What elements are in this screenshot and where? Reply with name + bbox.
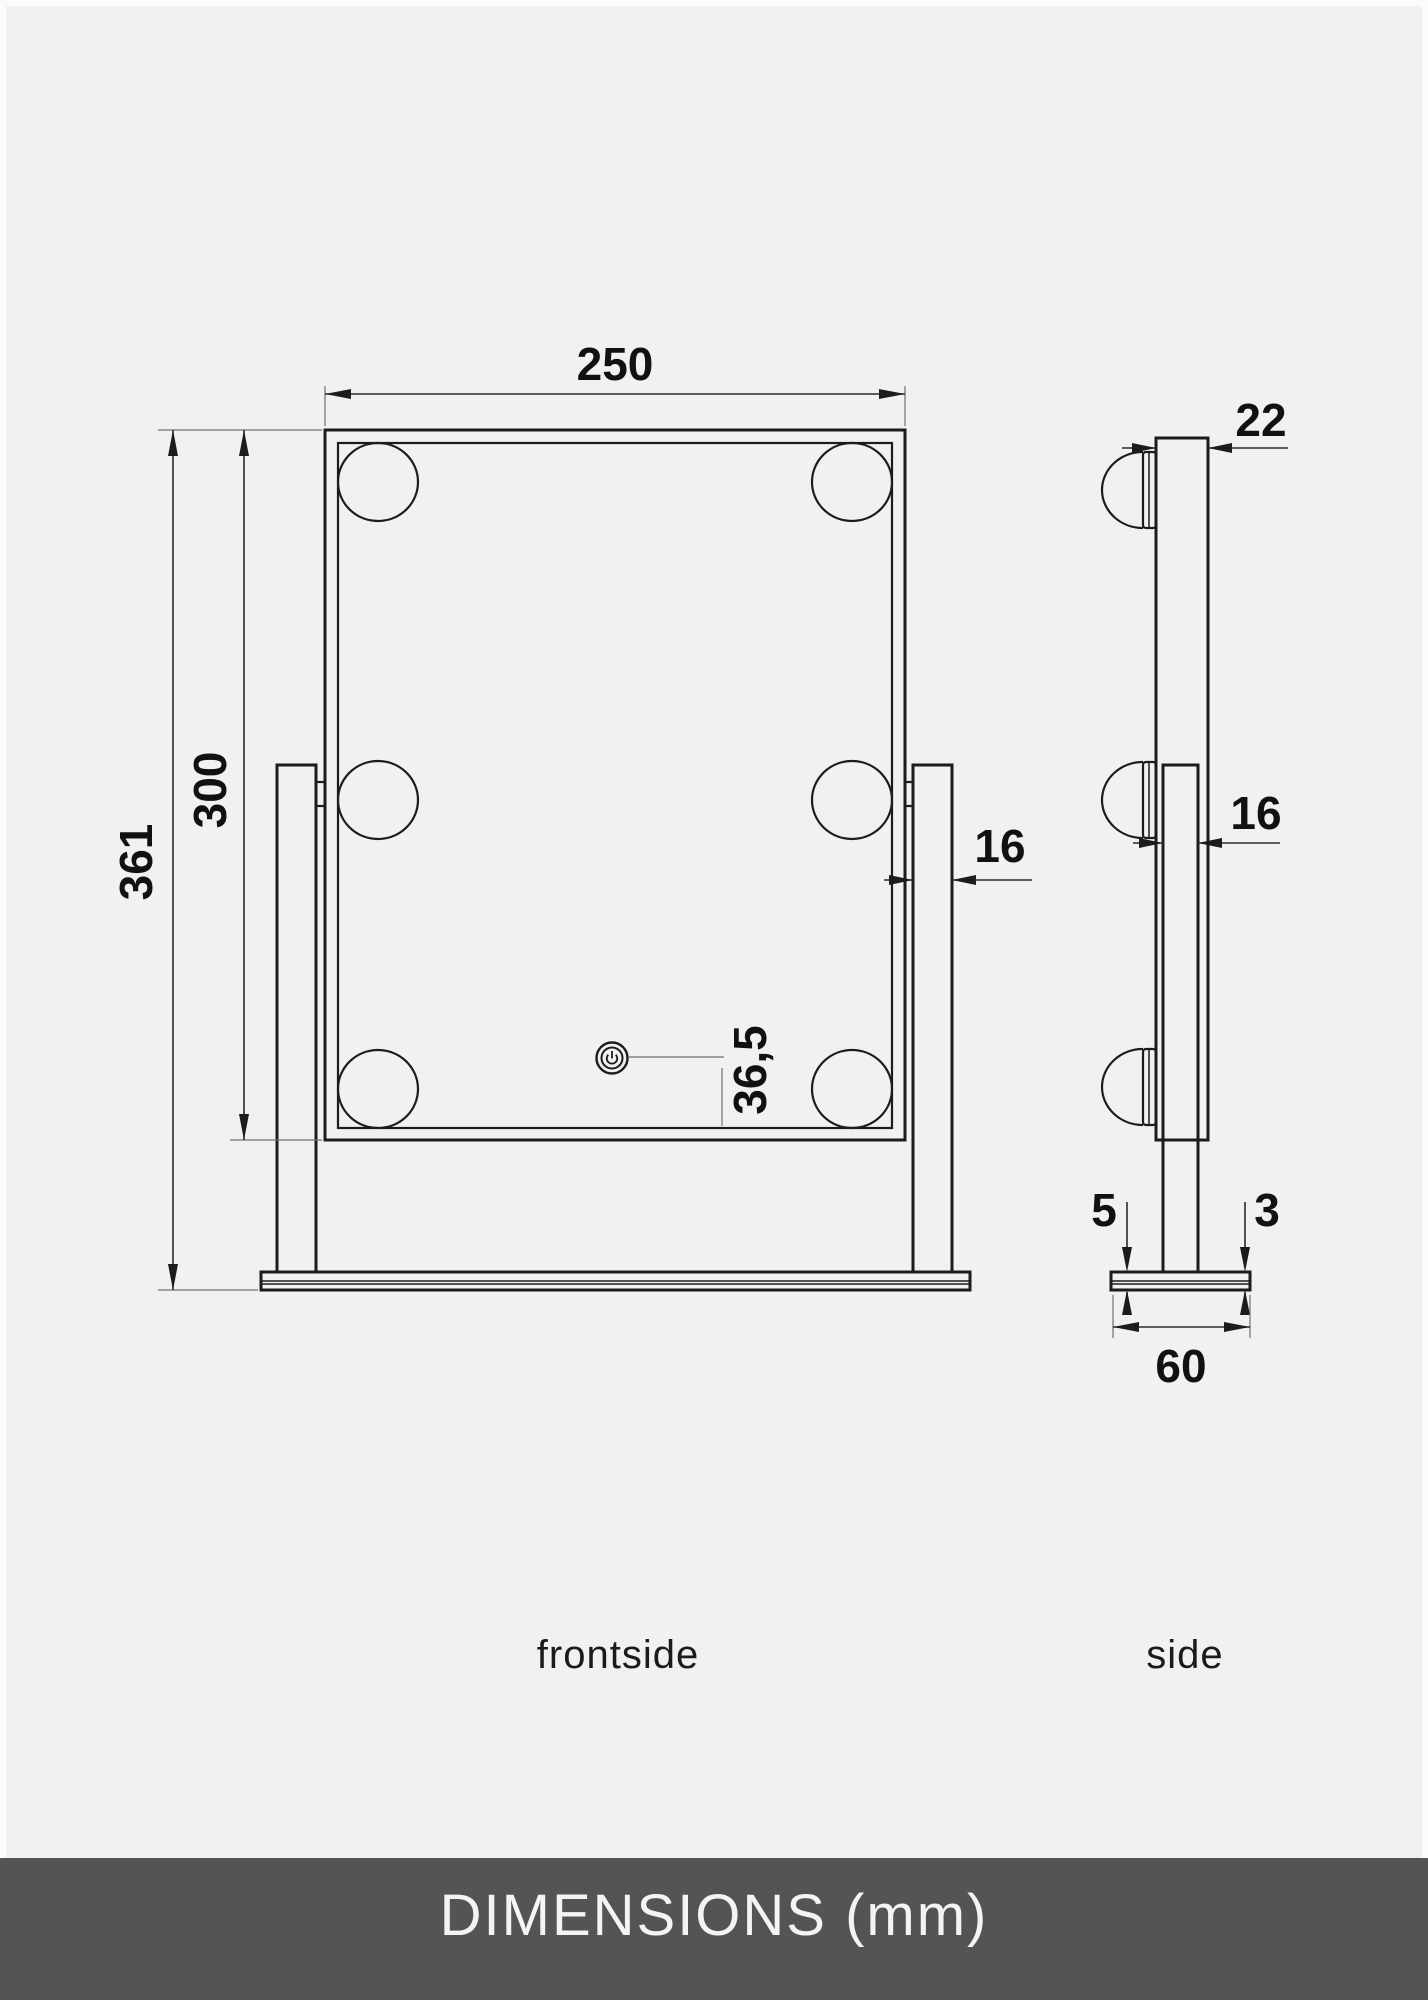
side-view-label: side bbox=[1146, 1633, 1223, 1677]
bulb-side bbox=[1102, 1049, 1156, 1125]
dimension-drawing-page: 250 361 300 16 36,5 22 bbox=[0, 0, 1428, 2000]
dim-depth-22: 22 bbox=[1122, 394, 1288, 453]
dim-base-plate-5: 5 bbox=[1091, 1184, 1132, 1315]
bulb-side bbox=[1102, 762, 1156, 838]
dim-label-60: 60 bbox=[1155, 1340, 1206, 1392]
dim-total-height-361: 361 bbox=[110, 430, 322, 1290]
dim-base-pad-3: 3 bbox=[1240, 1184, 1280, 1315]
dim-label-22: 22 bbox=[1235, 394, 1286, 446]
side-view bbox=[1102, 438, 1250, 1290]
dim-label-side-16: 16 bbox=[1230, 787, 1281, 839]
bulb bbox=[812, 1050, 892, 1128]
front-view bbox=[261, 430, 970, 1290]
bulb bbox=[338, 443, 418, 521]
dim-label-250: 250 bbox=[577, 338, 654, 390]
bulbs-side bbox=[1102, 452, 1156, 1125]
footer-banner: DIMENSIONS (mm) bbox=[0, 1858, 1428, 2000]
stand-left-arm bbox=[277, 765, 316, 1272]
bulb bbox=[338, 1050, 418, 1128]
dim-power-offset-36-5: 36,5 bbox=[629, 1025, 776, 1126]
stand-base-front bbox=[261, 1272, 970, 1290]
dim-mirror-height-300: 300 bbox=[184, 430, 322, 1140]
mirror-inner-frame bbox=[338, 443, 892, 1128]
bulb bbox=[338, 761, 418, 839]
front-view-label: frontside bbox=[537, 1633, 699, 1677]
dim-label-361: 361 bbox=[110, 824, 162, 901]
bulb bbox=[812, 443, 892, 521]
footer-title: DIMENSIONS (mm) bbox=[440, 1883, 989, 1948]
dim-label-5: 5 bbox=[1091, 1184, 1117, 1236]
bulb bbox=[812, 761, 892, 839]
stand-right-arm bbox=[913, 765, 952, 1272]
stand-base-side bbox=[1111, 1272, 1250, 1290]
mirror-outer-frame bbox=[325, 430, 905, 1140]
dim-label-3: 3 bbox=[1254, 1184, 1280, 1236]
stand-arm-side bbox=[1163, 765, 1198, 1272]
dim-label-front-16: 16 bbox=[974, 820, 1025, 872]
dim-base-depth-60: 60 bbox=[1113, 1295, 1250, 1392]
dimension-drawing: 250 361 300 16 36,5 22 bbox=[0, 0, 1428, 2000]
dim-label-300: 300 bbox=[184, 752, 236, 829]
power-button-icon bbox=[597, 1043, 628, 1074]
bulb-side bbox=[1102, 452, 1156, 528]
dim-label-36-5: 36,5 bbox=[724, 1025, 776, 1115]
bulbs-front bbox=[338, 443, 892, 1128]
dim-width-250: 250 bbox=[325, 338, 905, 426]
